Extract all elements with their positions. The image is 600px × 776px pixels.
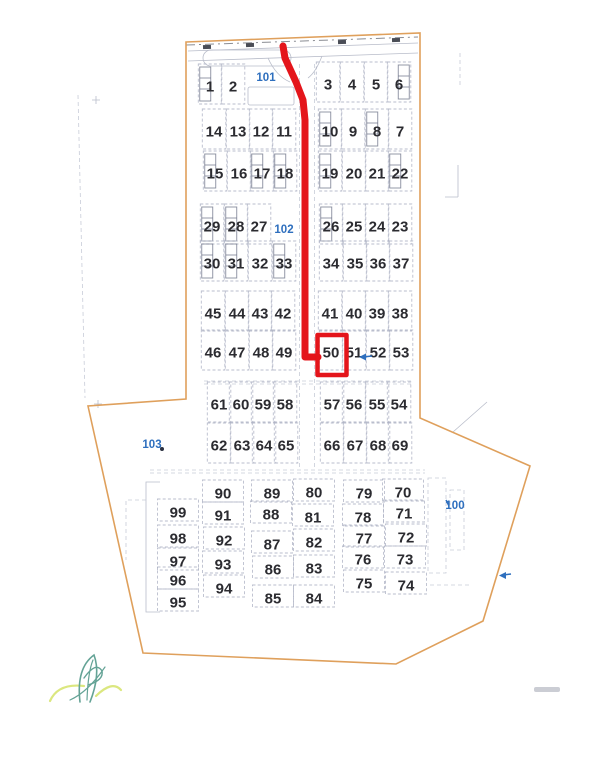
- plot-number-47: 47: [229, 345, 246, 362]
- plot-number-13: 13: [230, 124, 247, 141]
- plot-48: 48: [249, 330, 272, 370]
- plot-number-2: 2: [229, 79, 237, 96]
- plot-number-57: 57: [324, 397, 341, 414]
- plot-number-35: 35: [347, 256, 364, 273]
- plot-42: 42: [271, 291, 295, 331]
- plot-number-41: 41: [322, 306, 339, 323]
- plot-26: 26: [319, 204, 343, 244]
- plot-99: 99: [158, 499, 199, 522]
- plot-23: 23: [388, 204, 412, 244]
- plot-44: 44: [225, 291, 249, 331]
- plot-number-95: 95: [170, 595, 187, 612]
- plot-number-76: 76: [355, 552, 372, 569]
- plot-number-73: 73: [397, 552, 414, 569]
- plot-68: 68: [366, 423, 390, 463]
- plot-number-68: 68: [370, 438, 387, 455]
- plot-number-25: 25: [346, 219, 363, 236]
- plot-3: 3: [316, 62, 340, 102]
- plot-number-58: 58: [277, 397, 294, 414]
- plot-number-7: 7: [396, 124, 404, 141]
- zone-label-102: 102: [274, 224, 293, 236]
- plot-number-29: 29: [204, 219, 221, 236]
- plot-30: 30: [200, 241, 224, 281]
- plot-number-36: 36: [370, 256, 387, 273]
- plot-39: 39: [365, 291, 389, 331]
- plot-number-18: 18: [277, 166, 294, 183]
- plot-33: 33: [272, 241, 296, 281]
- plot-84: 84: [294, 585, 335, 608]
- plot-number-61: 61: [211, 397, 228, 414]
- plot-number-82: 82: [306, 535, 323, 552]
- plot-66: 66: [320, 423, 344, 463]
- plot-79: 79: [344, 480, 385, 503]
- plot-number-99: 99: [170, 505, 187, 522]
- plot-52: 52: [366, 330, 390, 370]
- plot-number-65: 65: [278, 438, 295, 455]
- plot-61: 61: [207, 382, 231, 422]
- plot-86: 86: [253, 556, 294, 579]
- plot-number-84: 84: [306, 591, 323, 608]
- plot-58: 58: [273, 382, 297, 422]
- leaf-logo: [50, 655, 121, 702]
- plot-2: 2: [221, 64, 245, 104]
- plot-number-30: 30: [204, 256, 221, 273]
- plot-number-77: 77: [356, 531, 373, 548]
- scale-smudge: [534, 687, 560, 692]
- plot-number-46: 46: [205, 345, 222, 362]
- plot-40: 40: [342, 291, 366, 331]
- zone-label-101: 101: [256, 72, 276, 84]
- plot-number-98: 98: [170, 531, 187, 548]
- plot-92: 92: [204, 527, 245, 550]
- plot-4: 4: [340, 62, 364, 102]
- plot-89: 89: [252, 480, 293, 503]
- plot-37: 37: [389, 241, 413, 281]
- plot-53: 53: [389, 330, 413, 370]
- plot-13: 13: [226, 109, 250, 149]
- plot-15: 15: [203, 151, 227, 191]
- plot-41: 41: [318, 291, 342, 331]
- plot-11: 11: [272, 109, 296, 149]
- plot-number-10: 10: [322, 124, 339, 141]
- plot-number-17: 17: [254, 166, 271, 183]
- plot-number-86: 86: [265, 562, 282, 579]
- plot-49: 49: [272, 330, 296, 370]
- plot-56: 56: [342, 382, 366, 422]
- plot-number-97: 97: [170, 554, 187, 571]
- plot-number-5: 5: [372, 77, 380, 94]
- plot-55: 55: [365, 382, 389, 422]
- plot-number-80: 80: [306, 485, 323, 502]
- plot-number-69: 69: [392, 438, 409, 455]
- plot-90: 90: [203, 480, 244, 503]
- plot-number-49: 49: [276, 345, 293, 362]
- plot-number-81: 81: [305, 510, 322, 527]
- plot-16: 16: [227, 151, 251, 191]
- plot-number-55: 55: [369, 397, 386, 414]
- plot-number-8: 8: [373, 124, 381, 141]
- plot-number-79: 79: [356, 486, 373, 503]
- plot-number-19: 19: [322, 166, 339, 183]
- plot-20: 20: [342, 151, 366, 191]
- plot-35: 35: [343, 241, 367, 281]
- plot-number-83: 83: [306, 561, 323, 578]
- plot-number-72: 72: [398, 530, 415, 547]
- plot-number-90: 90: [215, 486, 232, 503]
- plot-91: 91: [203, 502, 244, 525]
- plot-78: 78: [343, 504, 384, 527]
- plot-69: 69: [388, 423, 412, 463]
- plot-number-60: 60: [233, 397, 250, 414]
- direction-arrows: [160, 354, 511, 580]
- plot-number-33: 33: [276, 256, 293, 273]
- plot-72: 72: [386, 524, 427, 547]
- plot-number-94: 94: [216, 581, 233, 598]
- plot-28: 28: [224, 204, 248, 244]
- plot-74: 74: [386, 572, 427, 595]
- plot-21: 21: [365, 151, 389, 191]
- plot-7: 7: [388, 109, 412, 149]
- plot-number-23: 23: [392, 219, 409, 236]
- plot-number-16: 16: [231, 166, 248, 183]
- plot-93: 93: [203, 551, 244, 574]
- plot-number-92: 92: [216, 533, 233, 550]
- plot-77: 77: [344, 525, 385, 548]
- site-plan-map: 1234567891011121314151617181920212223242…: [0, 0, 600, 776]
- plot-number-96: 96: [170, 573, 187, 590]
- plot-number-78: 78: [355, 510, 372, 527]
- plot-number-21: 21: [369, 166, 386, 183]
- plot-number-3: 3: [324, 77, 332, 94]
- plot-number-88: 88: [263, 507, 280, 524]
- plot-number-75: 75: [356, 576, 373, 593]
- plot-27: 27: [247, 204, 270, 244]
- plot-number-62: 62: [211, 438, 228, 455]
- plot-number-50: 50: [323, 345, 340, 362]
- plot-46: 46: [201, 330, 225, 370]
- plot-32: 32: [248, 241, 271, 281]
- plot-95: 95: [158, 589, 199, 612]
- arrow-near-zone-100: [499, 572, 511, 579]
- plot-number-43: 43: [252, 306, 269, 323]
- plot-76: 76: [343, 546, 384, 569]
- plot-80: 80: [294, 479, 335, 502]
- plot-17: 17: [250, 151, 273, 191]
- plot-38: 38: [388, 291, 412, 331]
- plot-number-85: 85: [265, 591, 282, 608]
- plots-layer: 1234567891011121314151617181920212223242…: [158, 62, 427, 612]
- plot-47: 47: [225, 330, 249, 370]
- plot-59: 59: [251, 382, 274, 422]
- plot-number-11: 11: [276, 124, 292, 141]
- plot-number-54: 54: [391, 397, 408, 414]
- plot-14: 14: [202, 109, 226, 149]
- zone-label-100: 100: [445, 500, 464, 512]
- plot-24: 24: [365, 204, 389, 244]
- plot-number-53: 53: [393, 345, 410, 362]
- plot-number-71: 71: [396, 506, 413, 523]
- plot-1: 1: [198, 64, 222, 104]
- plot-9: 9: [341, 109, 365, 149]
- plot-number-38: 38: [392, 306, 409, 323]
- plot-number-34: 34: [323, 256, 340, 273]
- plot-number-6: 6: [395, 77, 403, 94]
- plot-94: 94: [204, 575, 245, 598]
- plot-number-20: 20: [346, 166, 363, 183]
- plot-number-56: 56: [346, 397, 363, 414]
- plot-number-39: 39: [369, 306, 386, 323]
- plot-63: 63: [230, 423, 254, 463]
- plot-number-63: 63: [234, 438, 251, 455]
- plot-number-27: 27: [251, 219, 268, 236]
- plot-19: 19: [318, 151, 342, 191]
- plot-number-52: 52: [370, 345, 387, 362]
- plot-60: 60: [229, 382, 253, 422]
- plot-54: 54: [387, 382, 411, 422]
- plot-64: 64: [252, 423, 275, 463]
- plot-36: 36: [366, 241, 390, 281]
- plot-29: 29: [200, 204, 224, 244]
- plot-34: 34: [319, 241, 343, 281]
- plot-25: 25: [342, 204, 366, 244]
- plot-number-4: 4: [348, 77, 357, 94]
- plot-number-70: 70: [395, 485, 412, 502]
- plot-number-89: 89: [264, 486, 281, 503]
- plot-number-14: 14: [206, 124, 223, 141]
- plot-number-28: 28: [228, 219, 245, 236]
- plot-83: 83: [294, 555, 335, 578]
- plot-number-91: 91: [215, 508, 232, 525]
- plot-75: 75: [344, 570, 385, 593]
- plot-81: 81: [293, 504, 334, 527]
- plot-number-87: 87: [264, 537, 281, 554]
- plot-10: 10: [318, 109, 342, 149]
- plot-57: 57: [320, 382, 344, 422]
- plot-number-24: 24: [369, 219, 386, 236]
- plot-62: 62: [207, 423, 231, 463]
- plot-number-48: 48: [253, 345, 270, 362]
- plot-82: 82: [294, 529, 335, 552]
- plot-number-9: 9: [349, 124, 357, 141]
- plot-5: 5: [364, 62, 388, 102]
- plot-31: 31: [224, 241, 248, 281]
- plot-number-15: 15: [207, 166, 224, 183]
- plot-43: 43: [248, 291, 271, 331]
- plot-71: 71: [384, 500, 425, 523]
- plot-18: 18: [273, 151, 297, 191]
- plot-6: 6: [387, 62, 411, 102]
- plot-98: 98: [158, 525, 199, 548]
- plot-number-93: 93: [215, 557, 232, 574]
- plot-number-66: 66: [324, 438, 341, 455]
- plot-12: 12: [249, 109, 272, 149]
- mark-near-zone-103: [160, 447, 164, 451]
- plot-number-42: 42: [275, 306, 292, 323]
- plot-87: 87: [252, 531, 293, 554]
- plot-number-22: 22: [392, 166, 409, 183]
- plot-number-67: 67: [347, 438, 364, 455]
- plot-number-12: 12: [253, 124, 270, 141]
- plot-67: 67: [343, 423, 367, 463]
- plot-number-37: 37: [393, 256, 410, 273]
- plot-number-59: 59: [255, 397, 272, 414]
- plot-number-26: 26: [323, 219, 340, 236]
- plot-45: 45: [201, 291, 225, 331]
- plot-65: 65: [274, 423, 298, 463]
- plot-70: 70: [383, 479, 424, 502]
- plot-number-64: 64: [256, 438, 273, 455]
- plot-73: 73: [385, 546, 426, 569]
- plot-number-74: 74: [398, 578, 415, 595]
- plot-8: 8: [365, 109, 389, 149]
- plot-88: 88: [251, 501, 292, 524]
- plot-85: 85: [253, 585, 294, 608]
- plot-number-32: 32: [252, 256, 269, 273]
- plot-number-1: 1: [206, 79, 214, 96]
- plot-number-40: 40: [346, 306, 363, 323]
- zone-label-103: 103: [142, 439, 161, 451]
- plot-22: 22: [388, 151, 412, 191]
- plot-number-31: 31: [228, 256, 245, 273]
- plot-number-45: 45: [205, 306, 222, 323]
- plot-number-44: 44: [229, 306, 246, 323]
